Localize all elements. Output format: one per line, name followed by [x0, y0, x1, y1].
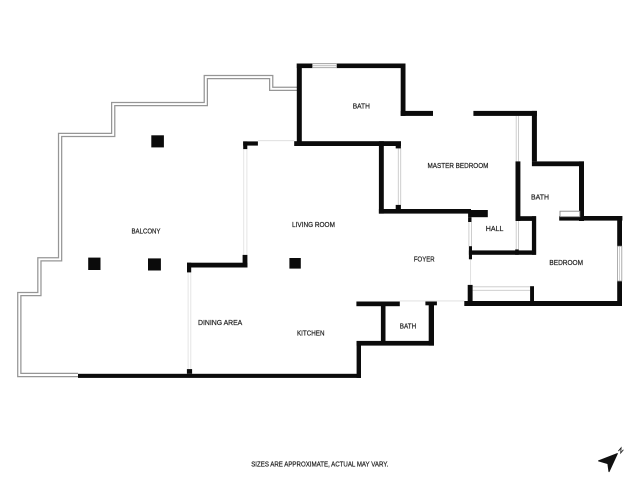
svg-text:BATH: BATH: [400, 323, 416, 331]
svg-text:HALL: HALL: [486, 224, 504, 233]
svg-text:DINING AREA: DINING AREA: [198, 318, 242, 327]
svg-text:BALCONY: BALCONY: [132, 228, 161, 236]
svg-text:LIVING ROOM: LIVING ROOM: [292, 222, 335, 230]
svg-text:BEDROOM: BEDROOM: [549, 260, 583, 267]
svg-text:MASTER BEDROOM: MASTER BEDROOM: [428, 162, 489, 170]
svg-text:FOYER: FOYER: [414, 256, 435, 264]
svg-text:BATH: BATH: [531, 192, 549, 201]
svg-text:BATH: BATH: [353, 103, 370, 110]
svg-text:KITCHEN: KITCHEN: [297, 330, 324, 338]
svg-text:SIZES ARE APPROXIMATE, ACTUAL: SIZES ARE APPROXIMATE, ACTUAL MAY VARY.: [251, 461, 388, 469]
